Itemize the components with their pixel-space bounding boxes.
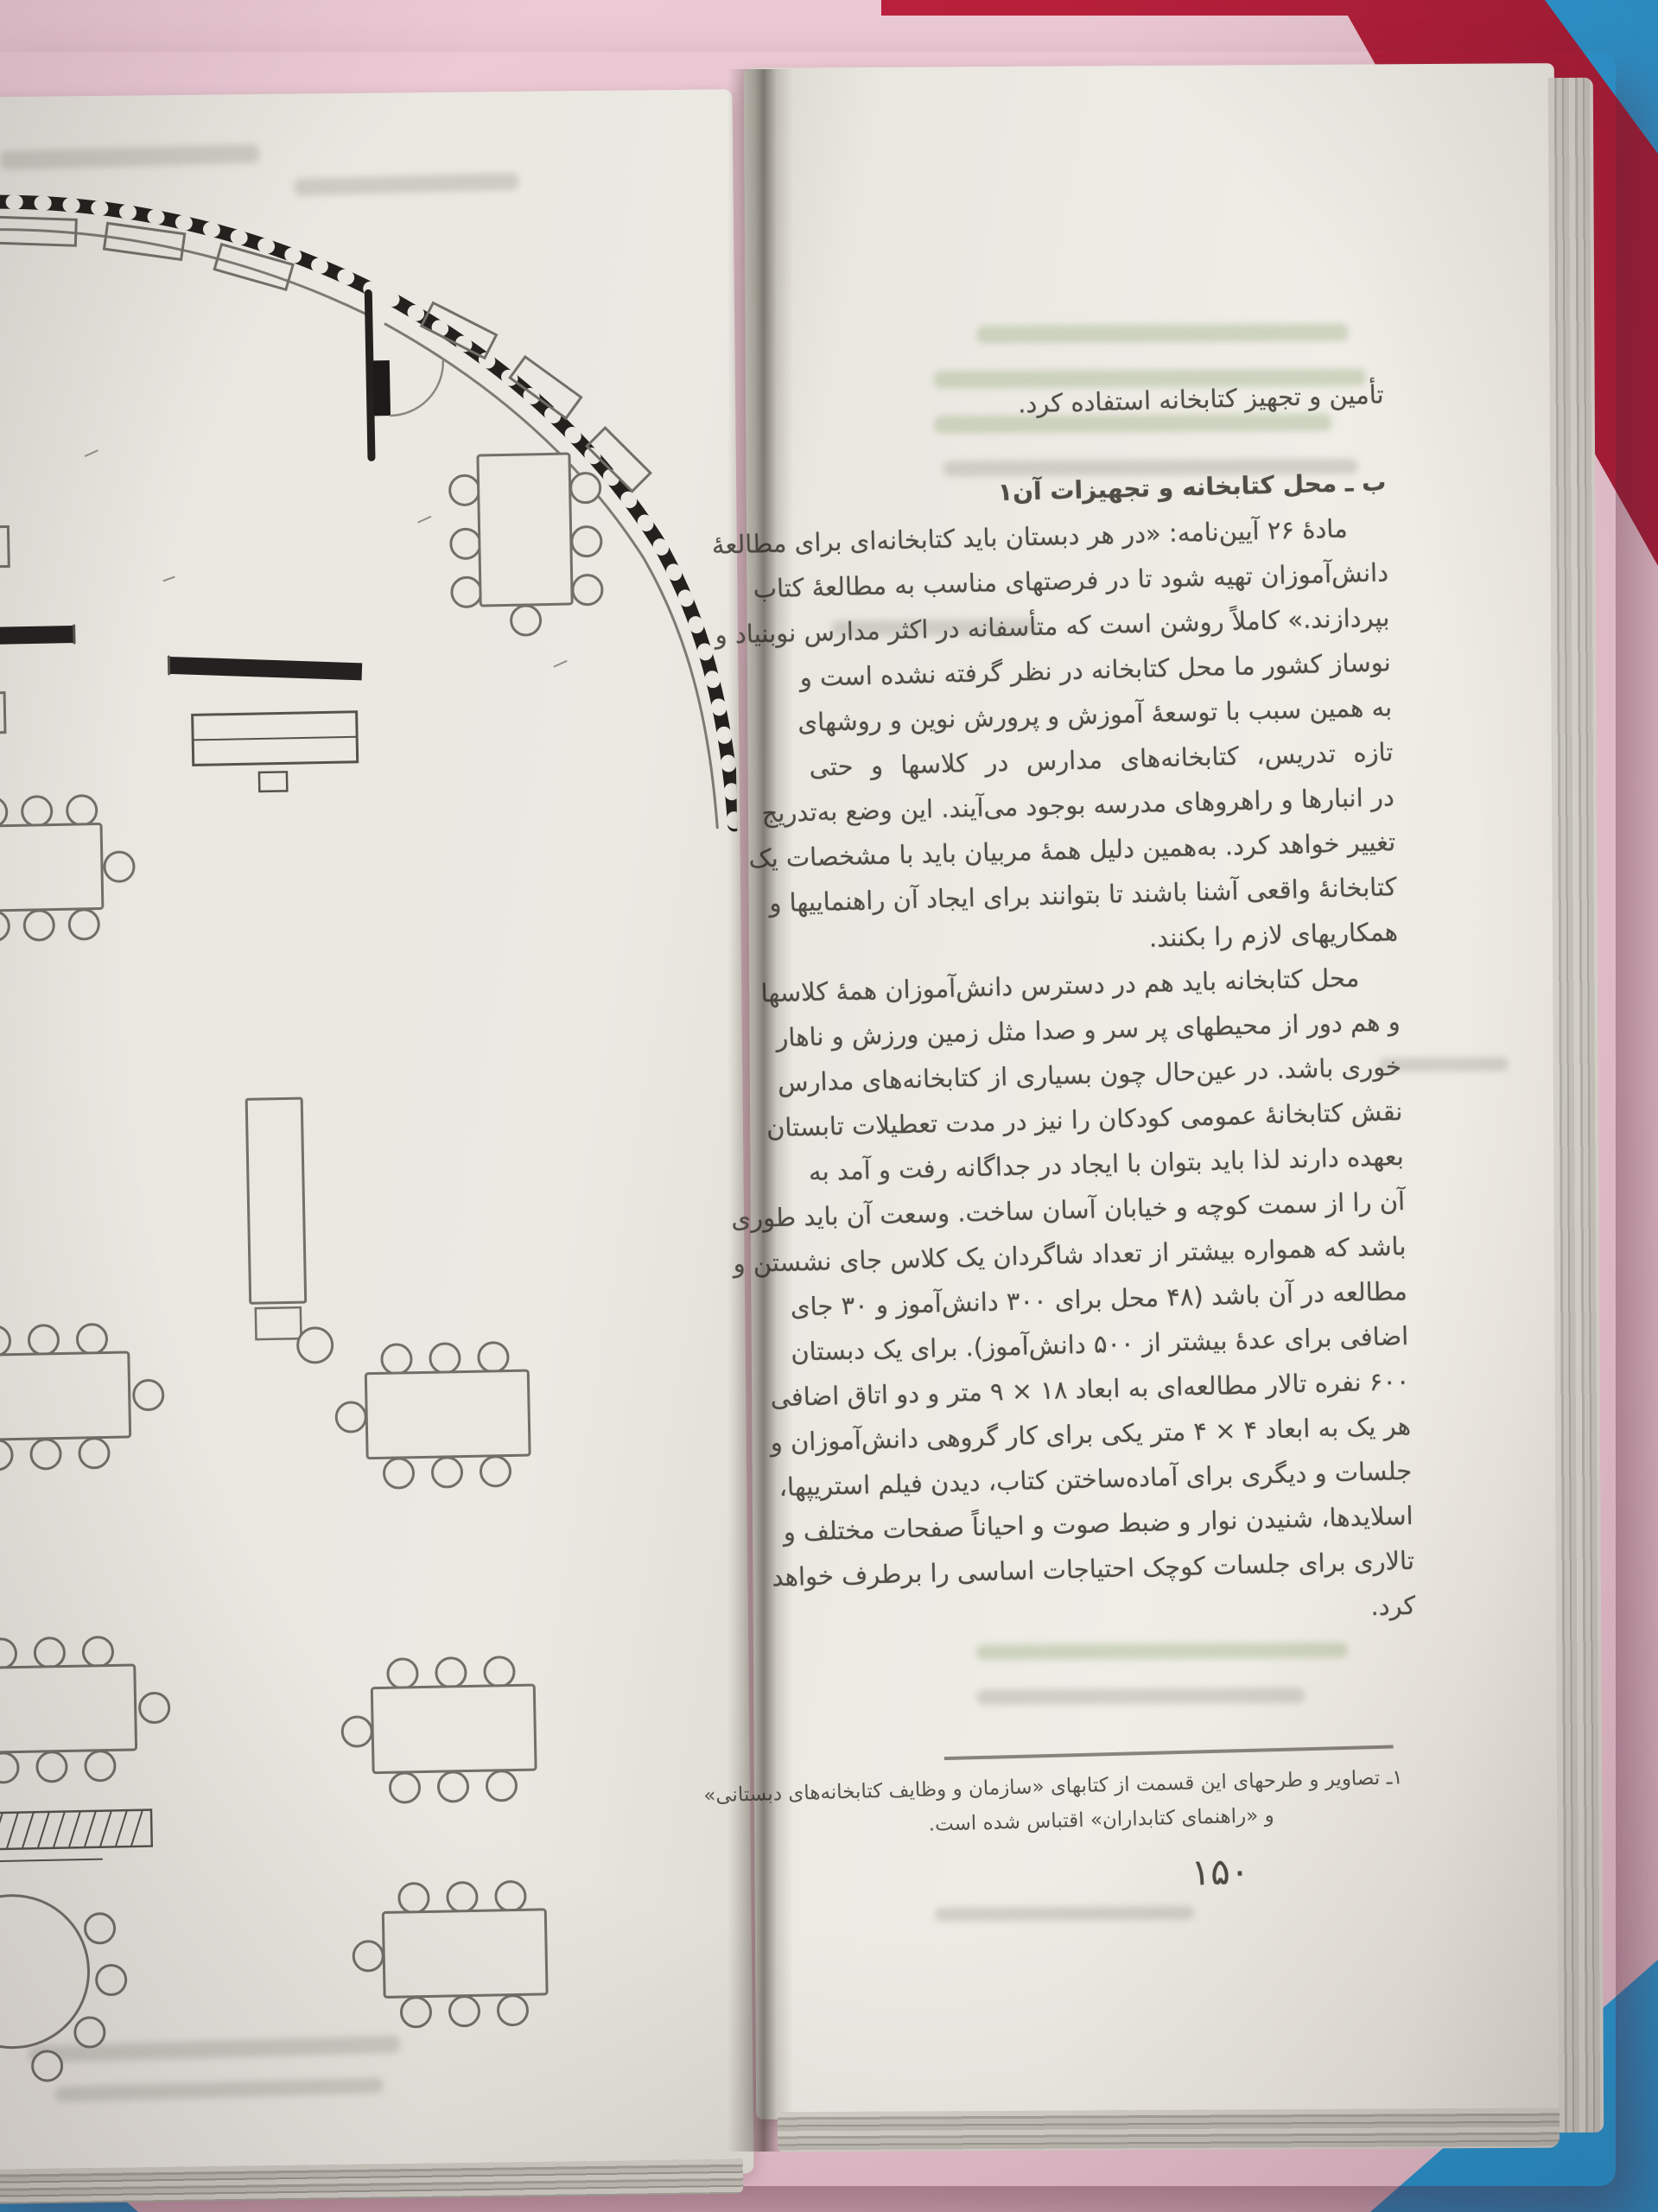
reading-table <box>353 1881 548 2028</box>
shelf-counter <box>193 712 359 793</box>
study-carrel <box>246 1098 333 1364</box>
text-line: تأمین و تجهیز کتابخانه استفاده کرد. <box>799 372 1384 432</box>
scale-bar <box>0 1810 152 1862</box>
interior-wall <box>0 620 363 689</box>
reading-table <box>335 1342 530 1489</box>
reading-table <box>0 1636 170 1783</box>
right-page-text: تأمین و تجهیز کتابخانه استفاده کرد. ب ـ … <box>744 63 1566 2120</box>
show-through-smudge <box>977 324 1349 344</box>
page-number: ۱۵۰ <box>1191 1850 1250 1894</box>
main-text-column: تأمین و تجهیز کتابخانه استفاده کرد. ب ـ … <box>799 372 1416 1643</box>
reading-table <box>0 1323 164 1470</box>
book-gutter-shadow <box>727 69 793 2152</box>
reading-table <box>341 1656 537 1803</box>
show-through-smudge <box>976 1688 1305 1705</box>
library-floor-plan-diagram <box>0 86 763 2185</box>
footnote: ۱ـ تصاویر و طرحهای این قسمت از کتابهای «… <box>763 1745 1404 1846</box>
reading-table <box>0 795 136 942</box>
footnote-separator-rule <box>944 1745 1394 1761</box>
show-through-smudge <box>935 1906 1194 1922</box>
outer-curved-wall <box>0 188 734 842</box>
show-through-smudge <box>976 1643 1348 1661</box>
reading-table <box>449 453 603 636</box>
round-reading-table <box>0 1893 128 2082</box>
page-stack-bottom-right <box>778 2108 1560 2152</box>
left-page-floor-plan <box>0 89 754 2181</box>
